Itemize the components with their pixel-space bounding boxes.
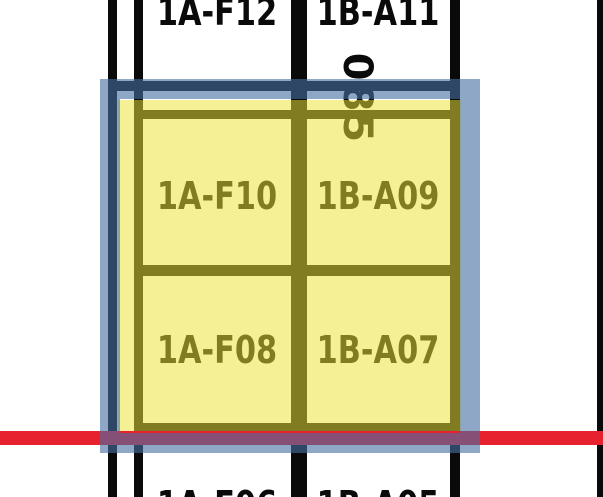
unit-label-1a-f12[interactable]: 1A-F12 (145, 0, 289, 31)
selection-rectangle (100, 79, 480, 453)
grid-vline-right-outer (597, 0, 603, 497)
unit-label-1b-a05[interactable]: 1B-A05 (306, 486, 450, 497)
unit-label-1b-a11[interactable]: 1B-A11 (306, 0, 450, 31)
facility-map-canvas: 1A-F12 1B-A11 1A-F10 1B-A09 1A-F08 1B-A0… (0, 0, 603, 497)
unit-label-1a-f06[interactable]: 1A-F06 (145, 486, 289, 497)
